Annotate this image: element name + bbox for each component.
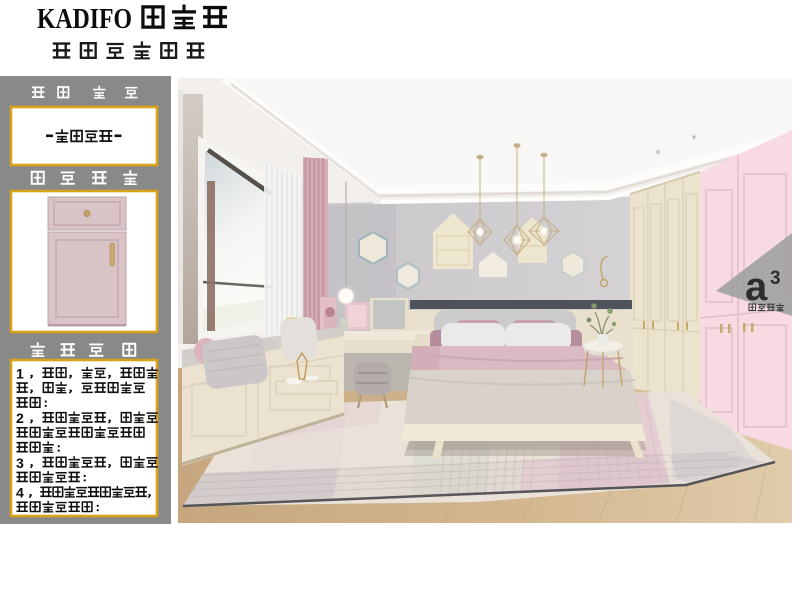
svg-text:1: 1 <box>16 365 24 381</box>
svg-text:4: 4 <box>16 485 24 501</box>
svg-text:KADIFO: KADIFO <box>37 4 132 35</box>
svg-text:a: a <box>745 265 768 309</box>
svg-text:3: 3 <box>16 455 24 471</box>
svg-text:2: 2 <box>16 410 24 426</box>
svg-text:3: 3 <box>770 268 781 289</box>
